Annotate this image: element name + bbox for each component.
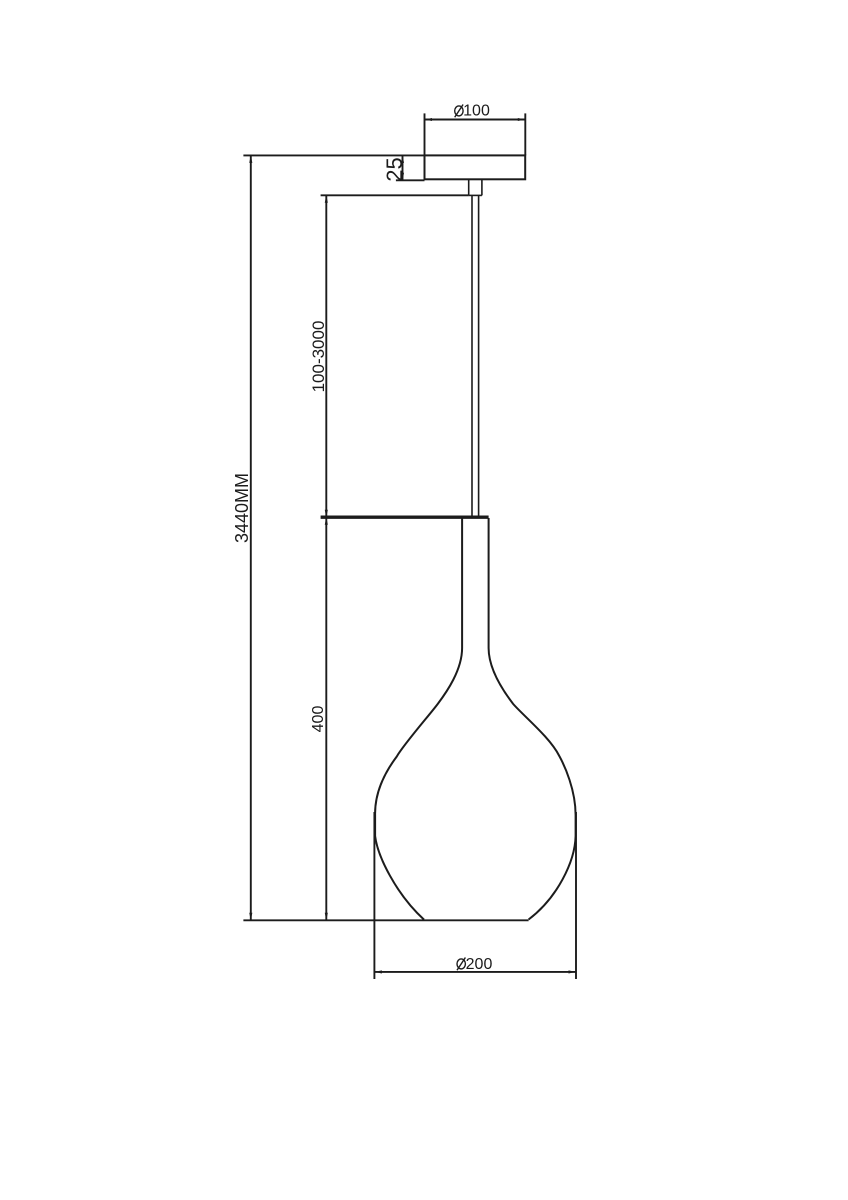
svg-text:100-3000: 100-3000 (309, 321, 328, 393)
svg-text:3440MM: 3440MM (232, 473, 252, 543)
svg-text:200: 200 (466, 956, 493, 973)
svg-text:100: 100 (463, 103, 490, 120)
svg-text:25: 25 (382, 157, 407, 181)
svg-text:400: 400 (310, 706, 327, 733)
